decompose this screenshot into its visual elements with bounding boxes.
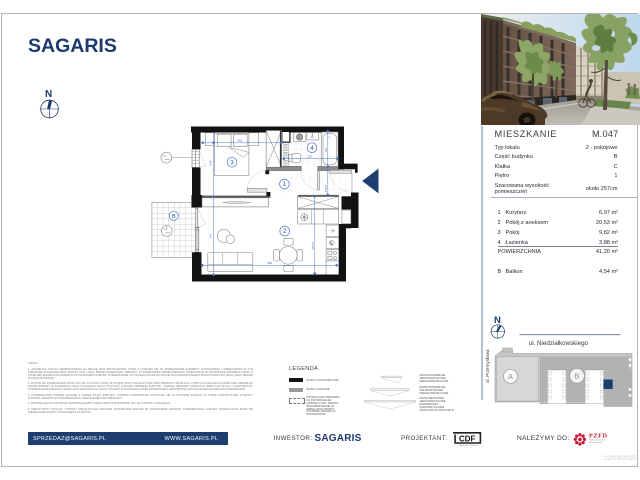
svg-text:267,5: 267,5	[311, 242, 315, 250]
svg-text:651: 651	[268, 261, 273, 265]
svg-text:Deweloperskich: Deweloperskich	[589, 441, 602, 444]
svg-text:B: B	[575, 373, 580, 380]
svg-text:B: B	[172, 214, 176, 220]
svg-text:246: 246	[208, 160, 212, 165]
svg-text:2: 2	[283, 228, 287, 235]
svg-text:ARCHITEKCI: ARCHITEKCI	[460, 444, 478, 447]
svg-text:N: N	[494, 315, 501, 326]
svg-text:ul. Niedziałkowskiego: ul. Niedziałkowskiego	[529, 340, 589, 347]
svg-text:1: 1	[283, 181, 287, 188]
svg-text:141: 141	[324, 147, 328, 152]
svg-text:376: 376	[208, 233, 212, 238]
svg-text:4: 4	[310, 145, 314, 152]
svg-text:257: 257	[308, 155, 313, 159]
svg-text:170,5: 170,5	[324, 185, 328, 193]
svg-text:CDF: CDF	[459, 434, 476, 443]
svg-text:A: A	[508, 374, 513, 381]
svg-text:PZFD: PZFD	[589, 433, 608, 440]
svg-text:ul. Przemysłowa: ul. Przemysłowa	[485, 349, 490, 383]
svg-text:3: 3	[230, 159, 234, 166]
svg-text:361: 361	[238, 139, 243, 143]
